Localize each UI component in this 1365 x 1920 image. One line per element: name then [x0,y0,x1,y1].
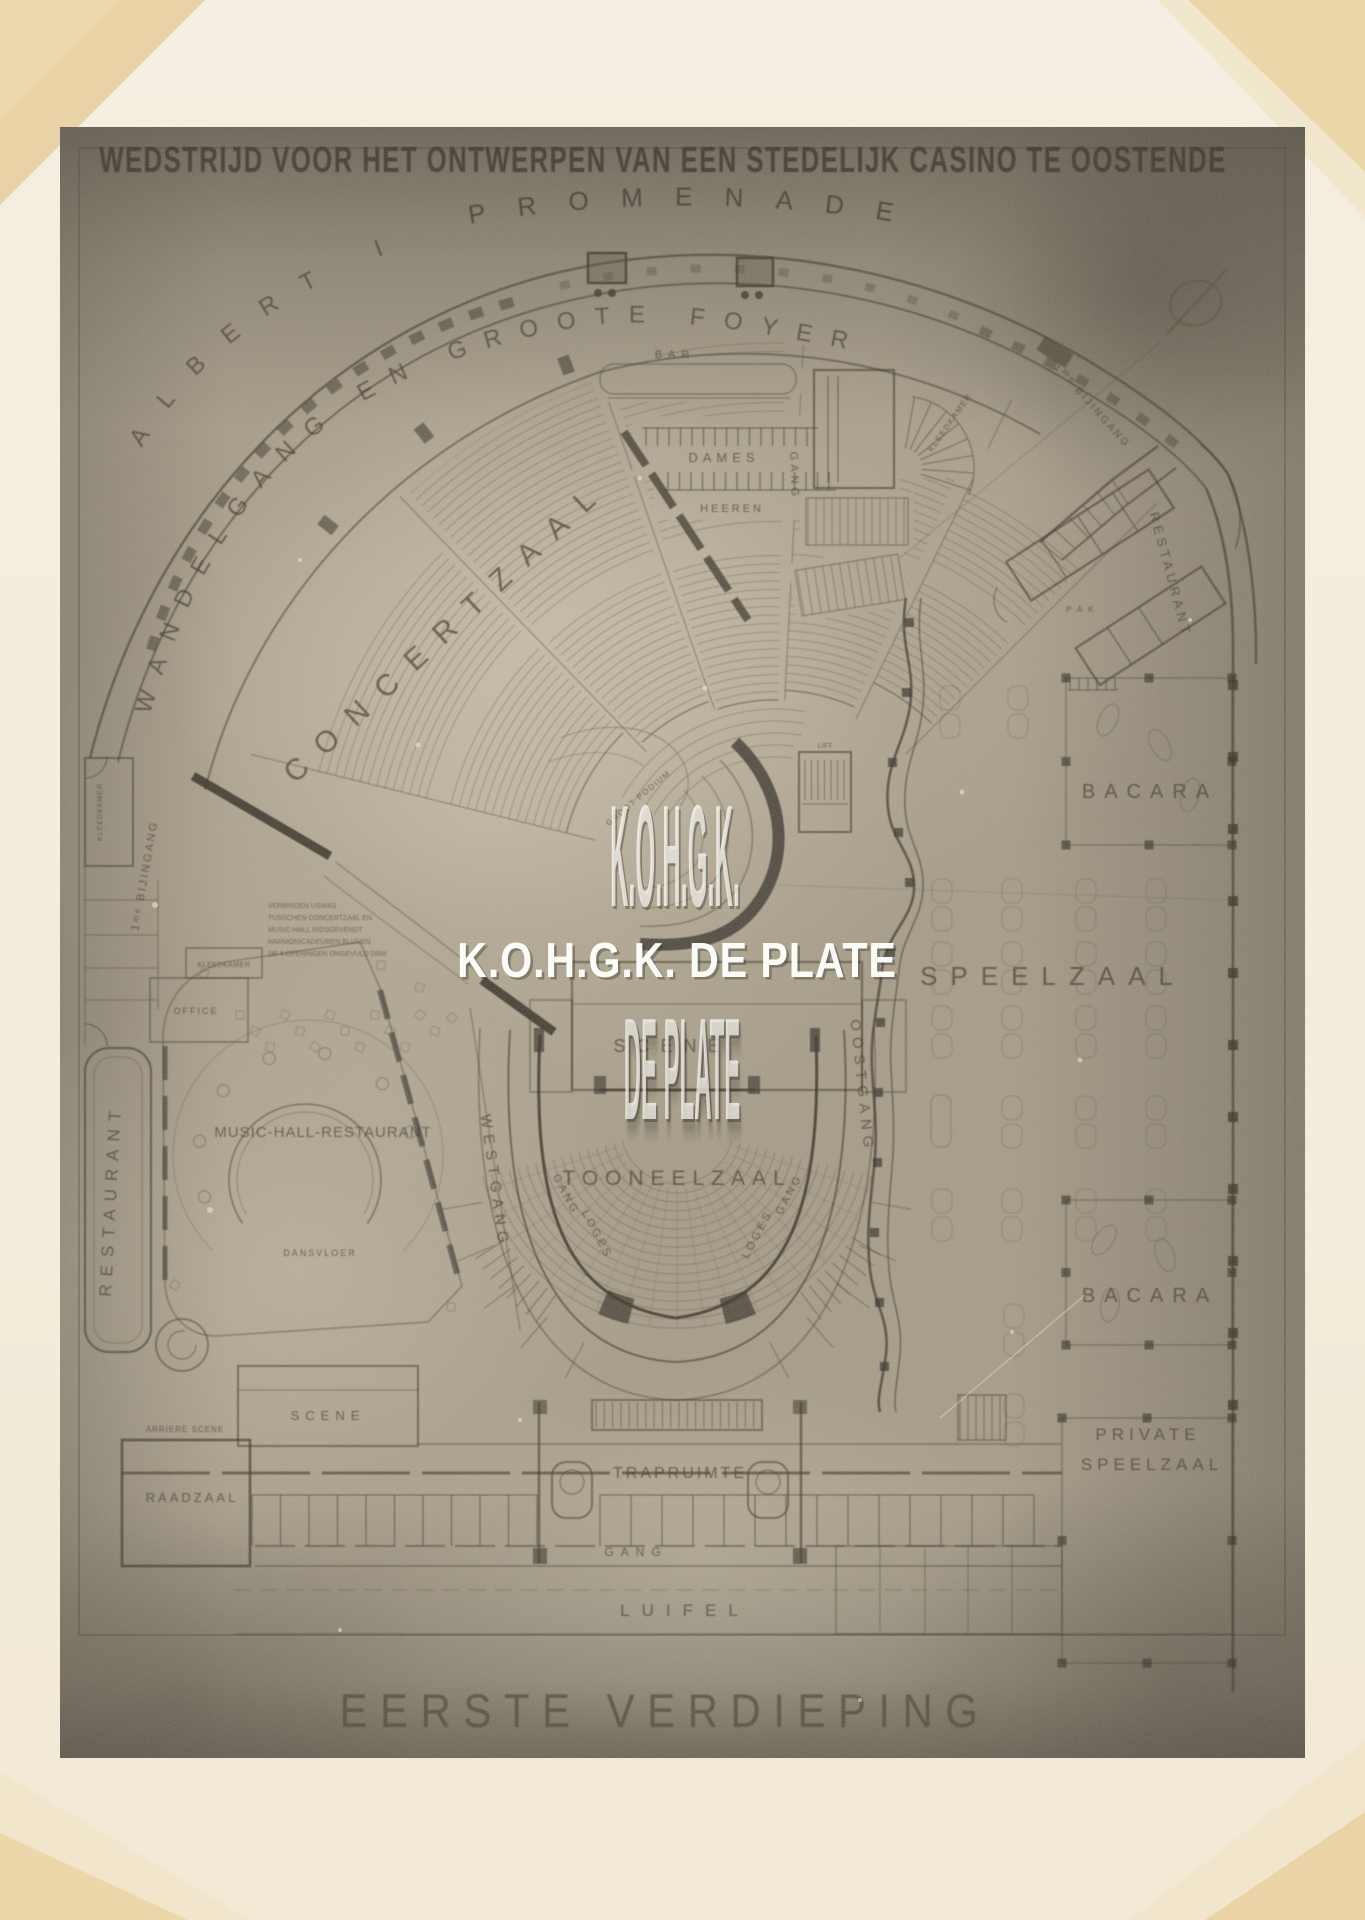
svg-text:DE PLATE: DE PLATE [624,989,741,1151]
svg-text:K.O.H.G.K.: K.O.H.G.K. [610,776,740,938]
svg-text:K.O.H.G.K. DE PLATE: K.O.H.G.K. DE PLATE [457,933,897,988]
